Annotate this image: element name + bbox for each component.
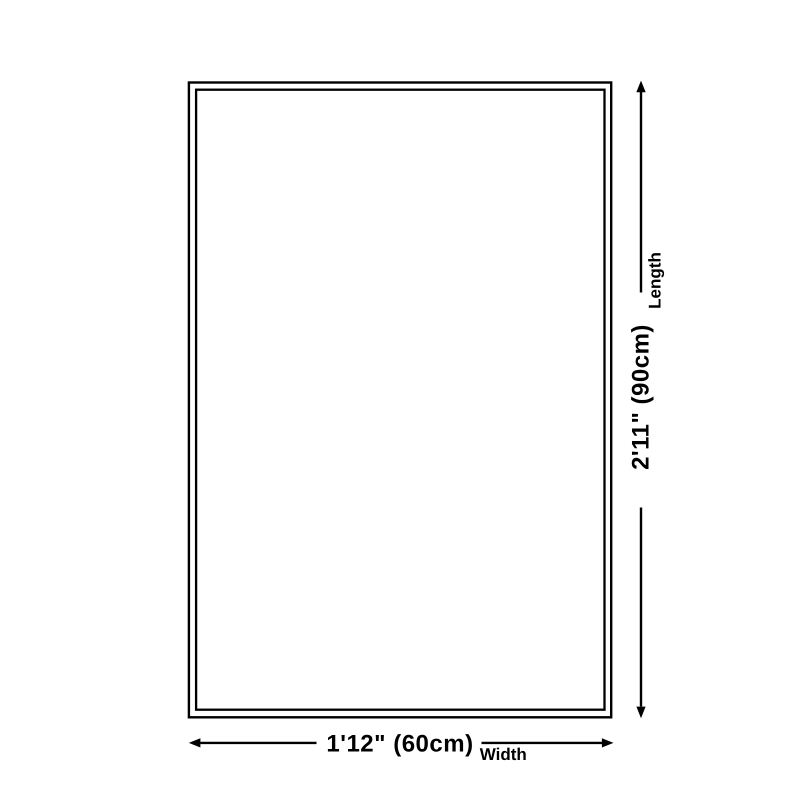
svg-text:1'12" (60cm): 1'12" (60cm) bbox=[326, 730, 473, 757]
svg-text:Length: Length bbox=[645, 252, 664, 309]
svg-text:Width: Width bbox=[480, 745, 527, 764]
svg-text:2'11" (90cm): 2'11" (90cm) bbox=[628, 324, 655, 470]
